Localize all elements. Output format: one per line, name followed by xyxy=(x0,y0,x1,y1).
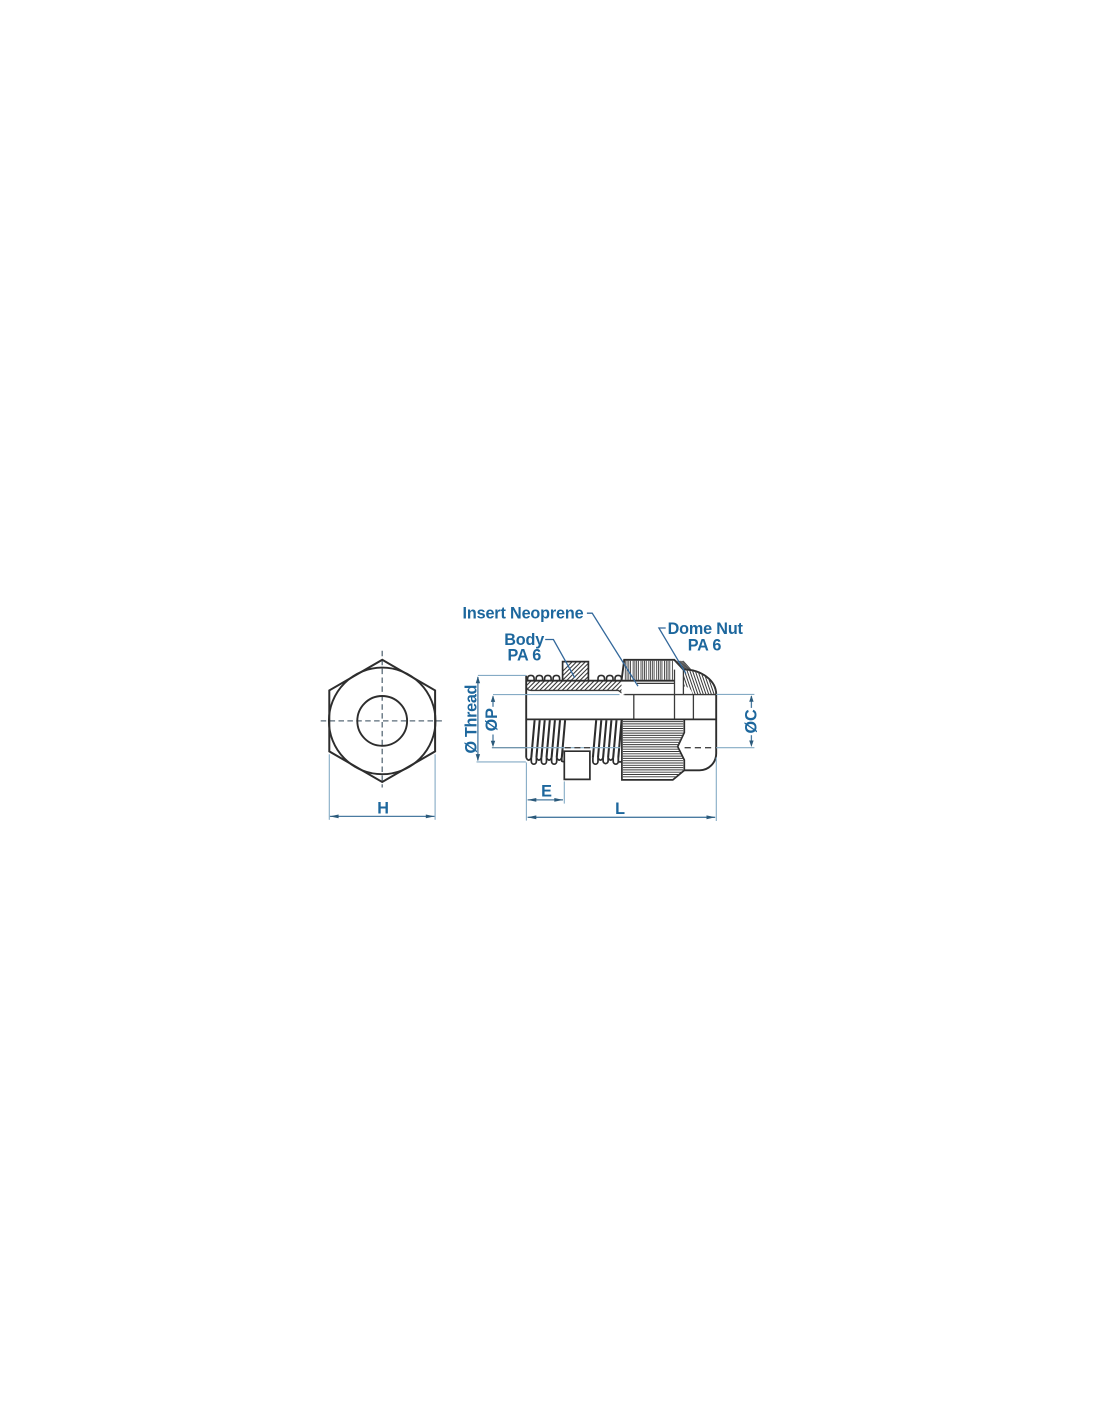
svg-text:ØP: ØP xyxy=(483,708,501,731)
svg-text:Ø Thread: Ø Thread xyxy=(462,685,480,754)
svg-text:PA 6: PA 6 xyxy=(688,636,722,654)
svg-text:ØC: ØC xyxy=(743,709,761,733)
svg-text:PA 6: PA 6 xyxy=(508,646,542,664)
svg-text:Dome Nut: Dome Nut xyxy=(668,620,744,638)
svg-text:E: E xyxy=(541,783,552,801)
svg-text:Insert Neoprene: Insert Neoprene xyxy=(463,605,584,623)
svg-text:H: H xyxy=(377,800,389,818)
svg-text:L: L xyxy=(615,800,625,818)
